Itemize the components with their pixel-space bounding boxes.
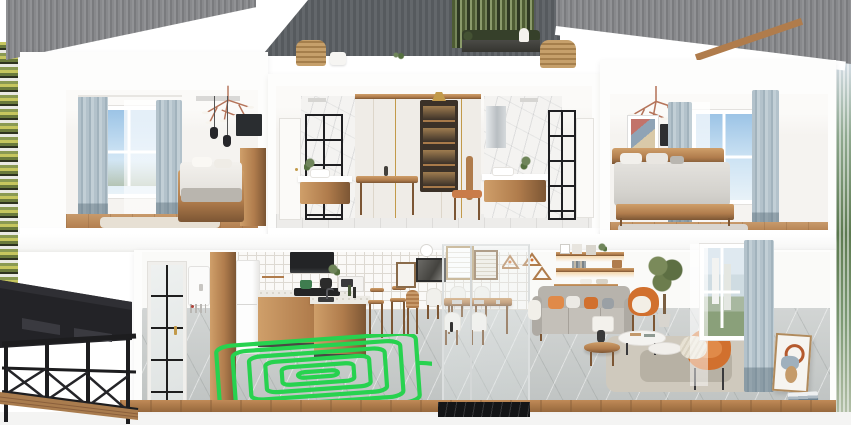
dressing-chair-legs <box>454 198 480 220</box>
left-bed-pillow-1 <box>192 157 212 167</box>
boiler-display <box>199 284 203 291</box>
sofa-seat <box>536 308 632 334</box>
door-knob-left <box>295 168 298 171</box>
cutaway-house-render <box>0 0 851 425</box>
vanity-right-sink <box>492 167 514 176</box>
orange-chair-sheepskin <box>632 296 651 313</box>
living-curtain <box>744 240 774 392</box>
partition-base-front <box>438 402 530 415</box>
sofa-white-throw <box>528 300 541 320</box>
wall-tv <box>236 114 262 136</box>
island-faucet <box>326 288 334 299</box>
entry-glass-door <box>148 262 186 404</box>
wardrobe-top-trim <box>355 94 481 99</box>
left-bed-blanket <box>181 188 242 202</box>
dressing-desk-top <box>356 176 418 183</box>
illuminated-shelf-niche <box>420 100 458 192</box>
living-sheer-curtain <box>690 244 708 386</box>
terrace-side-table <box>330 52 346 65</box>
bar-stool-1-back <box>370 288 384 292</box>
wall-clock <box>420 244 433 257</box>
bar-stool-2-legs <box>391 302 405 336</box>
ceiling-light-right <box>520 98 538 102</box>
right-bed-pillow-1 <box>620 153 642 164</box>
living-window-mullions <box>704 248 740 328</box>
sofa-pillow-orange-1 <box>548 296 564 309</box>
dressing-chair-seat <box>452 190 482 198</box>
wood-side-table-legs <box>590 352 614 366</box>
pendant-light-2 <box>223 135 231 147</box>
rattan-sofa <box>540 40 576 68</box>
coffee-table-decor-book <box>630 333 641 336</box>
curtain-rod <box>78 95 182 97</box>
shelf-decor-box <box>612 260 622 268</box>
niche-shelf-glow-2 <box>423 128 455 144</box>
leaning-abstract-canvas <box>772 333 812 393</box>
black-exterior-staircase <box>0 256 140 425</box>
sofa-pillow-white <box>566 296 580 308</box>
right-bed-duvet <box>614 162 730 206</box>
fridge-door-split <box>237 304 257 305</box>
niche-shelf-glow-3 <box>423 150 455 166</box>
pendant-light-cord-1 <box>214 96 215 128</box>
kitchen-plant <box>328 264 340 276</box>
bathroom-door-right <box>576 118 594 218</box>
pendant-light-1 <box>210 127 218 139</box>
potted-tree-foliage <box>646 254 684 296</box>
silver-cabinet <box>486 106 506 148</box>
niche-shelf-glow-4 <box>423 172 455 188</box>
bar-stool-1-legs <box>369 304 383 338</box>
partition-handle <box>450 322 453 332</box>
sofa-pillow-gray <box>602 298 614 309</box>
niche-shelf-glow-1 <box>423 106 455 122</box>
right-bed-legs <box>620 218 730 226</box>
gallery-frame-1 <box>396 262 416 288</box>
shelf-underlight-2 <box>556 272 634 278</box>
vanity-right-cabinet <box>484 180 546 202</box>
dressing-desk-legs <box>360 183 414 215</box>
vanity-right-plant <box>520 156 533 171</box>
left-bed-pillow-2 <box>214 159 232 168</box>
glass-partition-door-edge <box>470 246 472 404</box>
ceiling-light-left <box>308 98 326 102</box>
dining-chair-legs-1 <box>427 305 439 319</box>
terrace-small-plant <box>392 52 406 60</box>
right-bedroom-curtain-right <box>752 90 779 236</box>
green-pot <box>300 280 312 289</box>
right-bed-pillow-2 <box>646 153 668 164</box>
white-coffee-table-small <box>648 342 682 355</box>
island-bottles <box>348 285 351 296</box>
wood-dining-chair-legs <box>407 308 418 334</box>
terrace-planter-box <box>462 40 540 52</box>
wood-dining-chair <box>406 290 419 308</box>
sofa-pillow-orange-2 <box>584 297 598 309</box>
left-bedroom-curtain-left <box>78 96 108 224</box>
desk-decor-bottle <box>384 166 388 176</box>
glass-partition <box>442 244 530 406</box>
roof-left <box>6 0 256 60</box>
canvas-tan-shape <box>785 366 798 384</box>
right-bed-pillow-3 <box>670 156 684 164</box>
rattan-chair <box>296 40 326 66</box>
vanity-left-cabinet <box>300 182 350 204</box>
shelf-decor-books <box>572 261 586 268</box>
microwave-window <box>341 279 353 287</box>
shelf-decor-dish <box>580 279 592 284</box>
shelf-decor-frames <box>560 244 570 254</box>
pendant-light-cord-2 <box>227 96 228 136</box>
terrace-table-lamp <box>519 28 529 42</box>
potted-tree-trunk <box>663 294 666 316</box>
orange-shell-chair-legs <box>632 315 655 331</box>
shelf-decor-plant <box>598 243 607 252</box>
vanity-left-plant <box>304 158 316 172</box>
boiler-valve <box>191 305 194 308</box>
bathroom-glass-door-right <box>548 110 576 220</box>
floor-heating-coil <box>212 334 432 410</box>
entry-door-handle <box>174 326 177 335</box>
